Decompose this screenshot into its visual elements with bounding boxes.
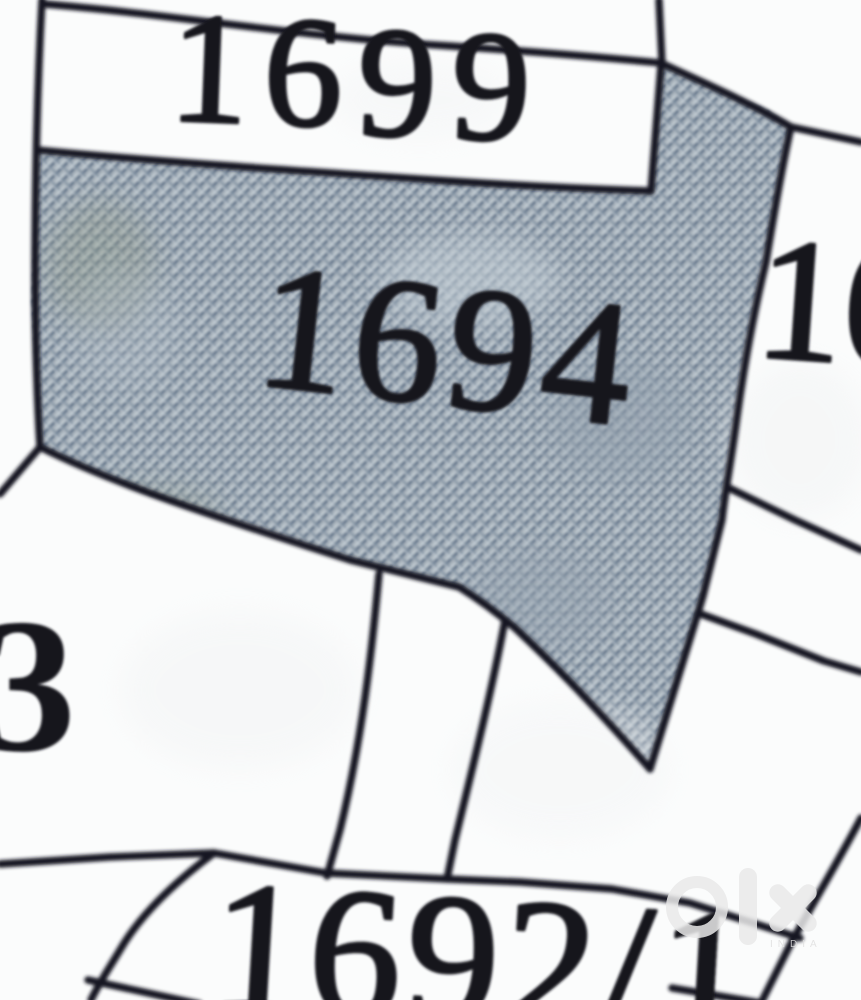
svg-text:3: 3: [0, 579, 76, 792]
svg-text:1699: 1699: [166, 0, 549, 176]
svg-text:INDIA: INDIA: [770, 939, 822, 950]
svg-text:10: 10: [750, 200, 861, 406]
svg-text:1694: 1694: [249, 226, 648, 465]
